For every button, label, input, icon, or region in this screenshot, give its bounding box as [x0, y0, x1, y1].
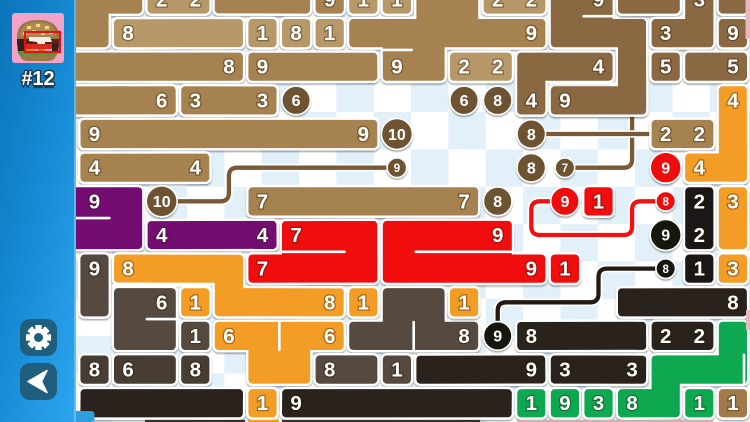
svg-text:2: 2 — [156, 0, 167, 11]
svg-text:8: 8 — [662, 264, 669, 276]
svg-text:8: 8 — [324, 359, 335, 382]
svg-text:8: 8 — [290, 22, 301, 45]
svg-text:10: 10 — [153, 194, 171, 211]
svg-text:2: 2 — [458, 56, 469, 79]
svg-text:6: 6 — [122, 359, 133, 382]
svg-text:1: 1 — [190, 325, 201, 348]
svg-text:8: 8 — [122, 22, 133, 45]
svg-text:8: 8 — [727, 291, 738, 314]
svg-text:3: 3 — [660, 22, 671, 45]
svg-text:9: 9 — [290, 392, 301, 415]
svg-text:9: 9 — [526, 22, 537, 45]
svg-text:3: 3 — [257, 89, 268, 112]
svg-text:8: 8 — [190, 359, 201, 382]
svg-text:7: 7 — [562, 163, 568, 175]
svg-text:4: 4 — [257, 224, 269, 247]
svg-text:2: 2 — [526, 0, 537, 11]
svg-text:9: 9 — [89, 123, 100, 146]
svg-text:7: 7 — [290, 224, 301, 247]
svg-text:4: 4 — [156, 224, 168, 247]
svg-text:8: 8 — [493, 194, 502, 211]
svg-text:9: 9 — [324, 0, 335, 11]
svg-text:1: 1 — [593, 190, 604, 213]
svg-text:9: 9 — [559, 89, 570, 112]
svg-text:6: 6 — [292, 93, 301, 110]
svg-text:9: 9 — [560, 194, 569, 211]
svg-text:3: 3 — [559, 359, 570, 382]
svg-text:3: 3 — [727, 190, 738, 213]
svg-text:2: 2 — [694, 190, 705, 213]
svg-text:9: 9 — [358, 123, 369, 146]
svg-text:1: 1 — [324, 22, 335, 45]
svg-text:9: 9 — [89, 190, 100, 213]
svg-text:9: 9 — [493, 329, 502, 346]
svg-text:1: 1 — [391, 0, 402, 11]
svg-text:2: 2 — [694, 224, 705, 247]
svg-text:9: 9 — [593, 0, 604, 11]
svg-text:5: 5 — [660, 56, 671, 79]
svg-text:7: 7 — [257, 258, 268, 281]
svg-text:1: 1 — [458, 291, 469, 314]
svg-text:1: 1 — [694, 258, 705, 281]
svg-text:2: 2 — [660, 123, 671, 146]
svg-text:4: 4 — [526, 89, 538, 112]
svg-text:2: 2 — [694, 325, 705, 348]
svg-text:4: 4 — [727, 89, 739, 112]
svg-text:9: 9 — [727, 22, 738, 45]
svg-text:9: 9 — [492, 224, 503, 247]
svg-text:8: 8 — [626, 392, 637, 415]
svg-text:9: 9 — [661, 228, 670, 245]
svg-text:4: 4 — [190, 157, 202, 180]
svg-text:2: 2 — [694, 123, 705, 146]
svg-text:9: 9 — [89, 258, 100, 281]
svg-text:9: 9 — [559, 392, 570, 415]
svg-text:8: 8 — [223, 56, 234, 79]
svg-text:2: 2 — [492, 56, 503, 79]
svg-text:6: 6 — [460, 93, 469, 110]
svg-text:9: 9 — [526, 258, 537, 281]
svg-text:9: 9 — [526, 359, 537, 382]
svg-text:3: 3 — [593, 392, 604, 415]
svg-text:6: 6 — [156, 291, 167, 314]
svg-text:5: 5 — [727, 56, 738, 79]
svg-text:9: 9 — [257, 56, 268, 79]
svg-text:8: 8 — [89, 359, 100, 382]
svg-text:6: 6 — [156, 89, 167, 112]
svg-text:6: 6 — [324, 325, 335, 348]
svg-text:1: 1 — [358, 291, 369, 314]
svg-text:1: 1 — [257, 22, 268, 45]
svg-text:6: 6 — [223, 325, 234, 348]
svg-text:9: 9 — [391, 56, 402, 79]
svg-text:4: 4 — [694, 157, 706, 180]
svg-text:9: 9 — [661, 160, 670, 177]
svg-text:2: 2 — [190, 0, 201, 11]
svg-text:4: 4 — [593, 56, 605, 79]
svg-text:1: 1 — [694, 392, 705, 415]
svg-text:8: 8 — [527, 127, 536, 144]
svg-text:1: 1 — [358, 0, 369, 11]
svg-text:2: 2 — [492, 0, 503, 11]
svg-text:1: 1 — [727, 392, 738, 415]
svg-text:8: 8 — [324, 291, 335, 314]
svg-text:3: 3 — [190, 89, 201, 112]
svg-text:1: 1 — [190, 291, 201, 314]
svg-text:7: 7 — [458, 190, 469, 213]
svg-text:8: 8 — [122, 258, 133, 281]
svg-text:10: 10 — [388, 127, 406, 144]
svg-text:1: 1 — [526, 392, 537, 415]
svg-text:4: 4 — [89, 157, 101, 180]
svg-text:8: 8 — [527, 160, 536, 177]
svg-text:8: 8 — [662, 197, 669, 209]
svg-text:3: 3 — [626, 359, 637, 382]
svg-text:1: 1 — [391, 359, 402, 382]
svg-text:2: 2 — [660, 325, 671, 348]
svg-text:7: 7 — [257, 190, 268, 213]
svg-text:9: 9 — [394, 163, 400, 175]
svg-text:3: 3 — [694, 0, 705, 11]
svg-text:1: 1 — [257, 392, 268, 415]
svg-text:8: 8 — [526, 325, 537, 348]
svg-text:8: 8 — [493, 93, 502, 110]
svg-text:1: 1 — [559, 258, 570, 281]
svg-text:8: 8 — [458, 325, 469, 348]
svg-text:3: 3 — [727, 258, 738, 281]
